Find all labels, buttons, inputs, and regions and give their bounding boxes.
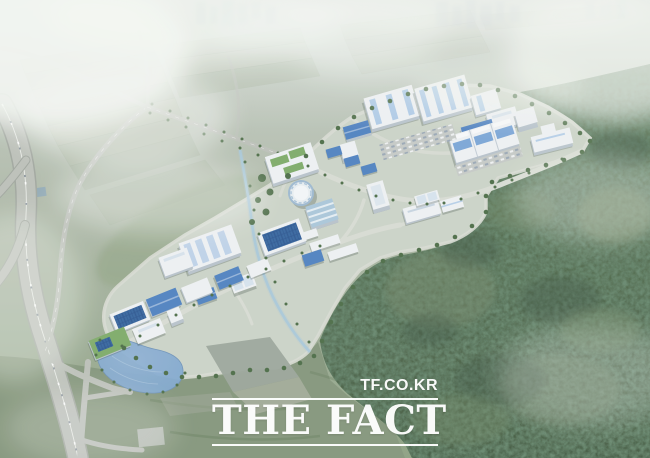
watermark: TF.CO.KR THE FACT [212,378,438,446]
watermark-rule-bottom [212,444,438,446]
watermark-brand: THE FACT [212,400,438,442]
aerial-rendering-canvas: TF.CO.KR THE FACT [0,0,650,458]
watermark-site-url: TF.CO.KR [212,378,438,394]
